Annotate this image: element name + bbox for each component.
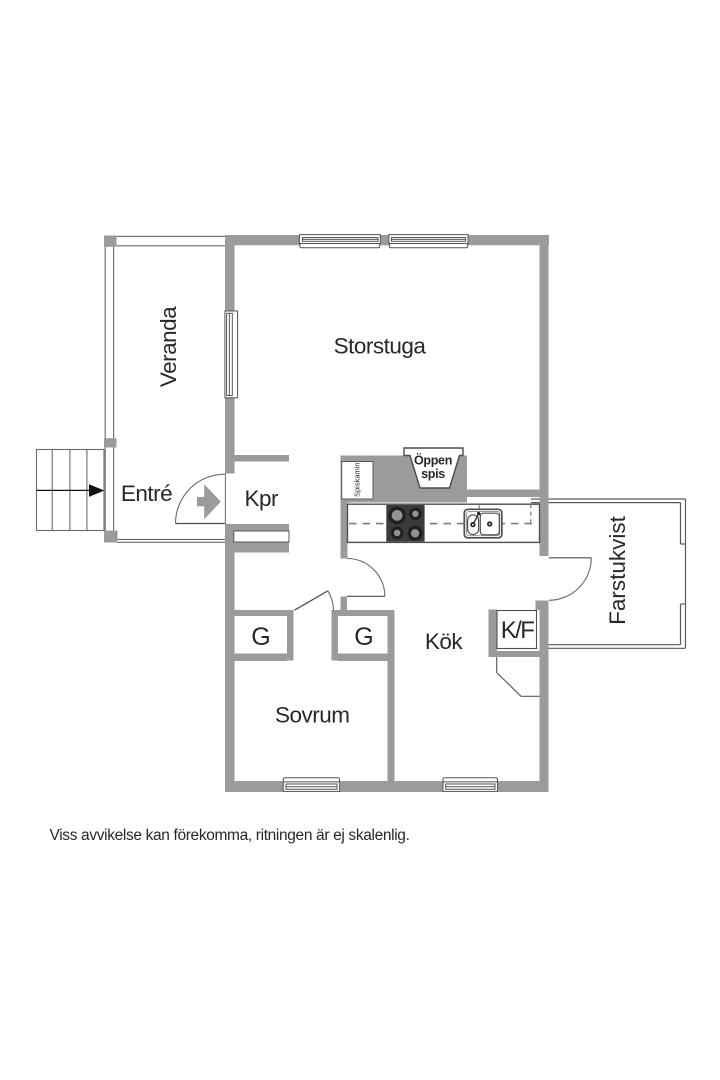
svg-text:Entré: Entré (121, 481, 172, 506)
svg-text:Farstukvist: Farstukvist (605, 515, 630, 625)
svg-text:Spiskamin: Spiskamin (353, 462, 362, 497)
svg-text:G: G (354, 623, 373, 651)
svg-text:Storstuga: Storstuga (334, 333, 427, 358)
svg-text:Viss avvikelse kan förekomma,: Viss avvikelse kan förekomma, ritningen … (50, 827, 410, 844)
svg-text:G: G (251, 623, 270, 651)
svg-text:Kök: Kök (425, 629, 464, 654)
svg-text:Öppen: Öppen (414, 453, 452, 468)
svg-text:Kpr: Kpr (245, 486, 280, 511)
svg-text:Sovrum: Sovrum (275, 703, 350, 728)
svg-text:Veranda: Veranda (156, 306, 181, 387)
svg-text:K/F: K/F (501, 617, 534, 644)
svg-text:spis: spis (421, 467, 445, 481)
